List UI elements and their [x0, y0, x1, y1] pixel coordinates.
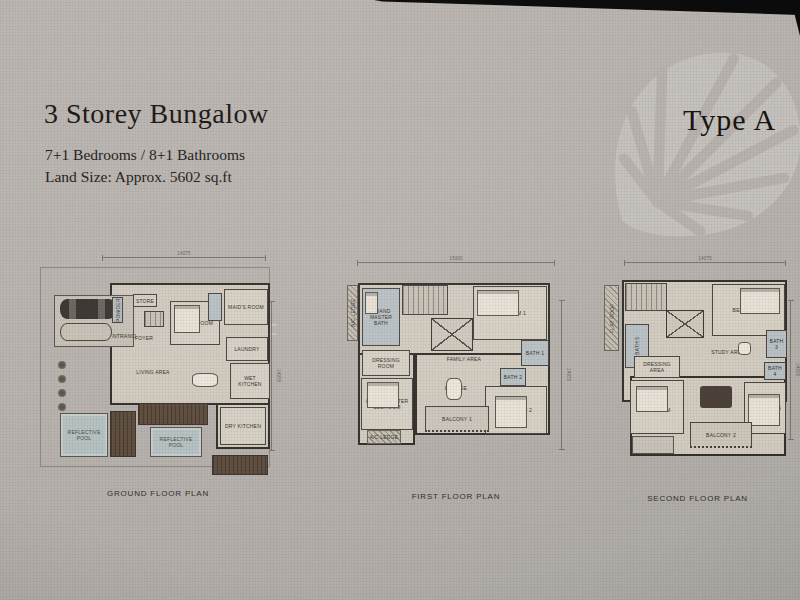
av-sofa — [700, 386, 732, 408]
brochure-page: 3 Storey Bungalow 7+1 Bedrooms / 8+1 Bat… — [0, 0, 800, 600]
guest-bath — [208, 293, 222, 321]
room-14935: 14935 — [561, 300, 562, 450]
room-reflective-pool: REFLECTIVE POOL — [150, 427, 202, 457]
bed — [367, 382, 399, 408]
room-dry-kitchen: DRY KITCHEN — [220, 407, 266, 445]
room-label: LAUNDRY — [227, 338, 267, 360]
timber-deck — [110, 411, 136, 457]
room-label: REFLECTIVE POOL — [61, 414, 107, 456]
room-powder: POWDER — [112, 297, 123, 323]
room-label: POWDER — [113, 298, 122, 322]
room-label: BATH 3 — [767, 331, 786, 357]
room-label: A/C LEDGE — [348, 286, 357, 340]
bed — [740, 288, 780, 314]
dining-table — [192, 373, 218, 387]
room-balcony-1: BALCONY 1 — [425, 406, 489, 432]
plan-shape-plant — [58, 389, 66, 397]
type-label: Type A — [683, 103, 776, 137]
room-label: BATH 4 — [765, 363, 785, 379]
ground-floor-caption: GROUND FLOOR PLAN — [38, 489, 278, 498]
guest-bed — [174, 305, 200, 333]
room-label: REFLECTIVE POOL — [151, 428, 201, 456]
room-label: DRY KITCHEN — [221, 408, 265, 444]
first-floor-caption: FIRST FLOOR PLAN — [345, 492, 567, 501]
plan-shape-plant — [58, 403, 66, 411]
room-bath-2: BATH 2 — [500, 368, 526, 386]
car-1 — [60, 299, 116, 319]
room-label: BALCONY 2 — [691, 423, 751, 446]
room-label: DRESSING AREA — [635, 357, 679, 377]
room-maid-s-room: MAID'S ROOM — [224, 289, 268, 325]
room-label: LIVING AREA — [128, 353, 178, 391]
room-label: A/C LEDGE — [368, 431, 400, 443]
room-label: 14935 — [563, 300, 573, 450]
page-subtitle: 7+1 Bedrooms / 8+1 Bathrooms Land Size: … — [45, 144, 245, 189]
room-label: FLAT ROOF — [605, 286, 618, 350]
room-label: 14075 — [102, 249, 266, 259]
stairs — [625, 283, 667, 311]
room-wet-kitchen: WET KITCHEN — [230, 363, 270, 399]
room-14075: 14075 — [102, 257, 266, 258]
room-a-c-ledge: A/C LEDGE — [367, 430, 401, 444]
second-floor-plan: 1407514935FLAT ROOFBATH 5BEDROOM 3STUDY … — [600, 258, 795, 496]
room-flat-roof: FLAT ROOF — [604, 285, 619, 351]
bed — [495, 396, 527, 428]
room-label: DRESSING ROOM — [363, 351, 409, 375]
room-a-c-ledge: A/C LEDGE — [347, 285, 358, 341]
room-14935: 14935 — [790, 300, 791, 440]
room-bath-3: BATH 3 — [766, 330, 787, 358]
room-label: BALCONY 1 — [426, 407, 488, 430]
room-dressing-room: DRESSING ROOM — [362, 350, 410, 376]
room-entrance: ENTRANCE — [112, 327, 136, 345]
bed — [748, 394, 780, 426]
terrace — [632, 436, 674, 454]
timber-deck — [212, 455, 268, 475]
room-14935: 14935 — [271, 301, 272, 451]
room-label: BATH 1 — [522, 341, 548, 365]
bedrooms-bathrooms-line: 7+1 Bedrooms / 8+1 Bathrooms — [45, 144, 245, 166]
room-laundry: LAUNDRY — [226, 337, 268, 361]
timber-deck — [138, 403, 208, 425]
room-bath-4: BATH 4 — [764, 362, 786, 380]
land-size-line: Land Size: Approx. 5602 sq.ft — [45, 166, 245, 188]
room-label: STUDY AREA — [692, 332, 764, 372]
room-dressing-area: DRESSING AREA — [634, 356, 680, 378]
plan-shape-plant — [58, 375, 66, 383]
room-label: BATH 2 — [501, 369, 525, 385]
room-reflective-pool: REFLECTIVE POOL — [60, 413, 108, 457]
room-15000: 15000 — [357, 262, 555, 263]
second-floor-caption: SECOND FLOOR PLAN — [600, 494, 795, 503]
room-study-area: STUDY AREA — [692, 332, 764, 372]
room-14075: 14075 — [624, 262, 786, 263]
room-label: WET KITCHEN — [231, 364, 269, 398]
room-label: ENTRANCE — [112, 327, 136, 345]
stairs — [144, 311, 164, 327]
room-balcony-2: BALCONY 2 — [690, 422, 752, 448]
room-label: 15000 — [357, 254, 555, 264]
room-store: STORE — [133, 294, 157, 307]
bed — [477, 290, 519, 316]
lounge-table — [446, 378, 462, 400]
room-label: 14935 — [273, 301, 283, 451]
stairs — [402, 285, 448, 315]
bathtub — [365, 292, 378, 314]
room-label: STORE — [134, 295, 156, 306]
room-label: 14075 — [624, 254, 786, 264]
car-2 — [60, 323, 112, 341]
room-label: MAID'S ROOM — [225, 290, 267, 324]
room-bath-1: BATH 1 — [521, 340, 549, 366]
plan-shape-plant — [58, 361, 66, 369]
monstera-leaf-watermark — [605, 42, 800, 247]
ground-floor-plan: 1407514935POWDERSTOREFOYERGUEST ROOMMAID… — [38, 253, 278, 485]
photo-edge-dark-wedge — [374, 0, 800, 15]
room-living-area: LIVING AREA — [128, 353, 178, 391]
page-title: 3 Storey Bungalow — [44, 98, 269, 130]
first-floor-plan: 1500014935A/C LEDGEGRAND MASTER BATHBEDR… — [345, 258, 567, 490]
room-label: 14935 — [792, 300, 800, 440]
study-table — [738, 342, 751, 355]
bed — [636, 386, 668, 412]
